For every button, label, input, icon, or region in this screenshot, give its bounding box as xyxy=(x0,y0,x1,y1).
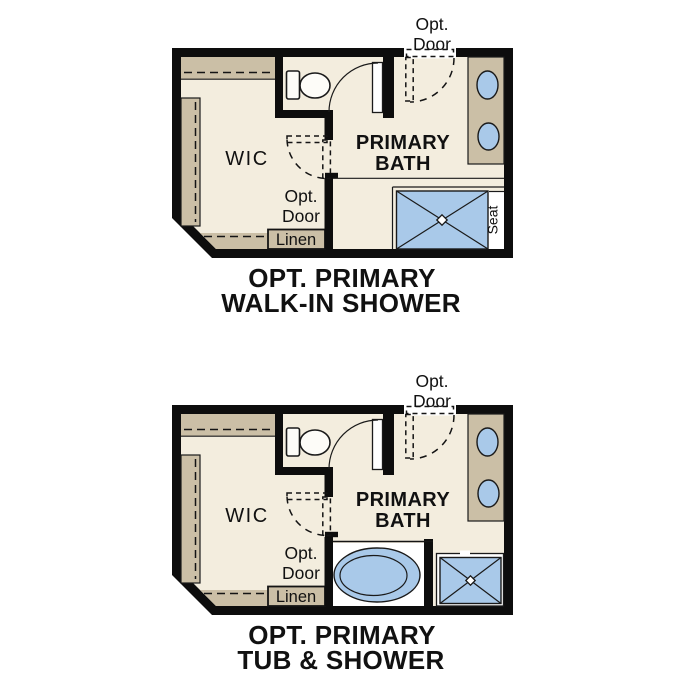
wic-label: WIC xyxy=(225,505,268,527)
double-sink-vanity xyxy=(468,414,504,521)
wic-label: WIC xyxy=(225,148,268,170)
opt-door-wic-label-line2: Door xyxy=(282,206,320,226)
opt-door-top-label-line1: Opt. xyxy=(415,14,448,34)
plan-title-line2: TUB & SHOWER xyxy=(237,645,444,675)
corner-shower xyxy=(437,551,504,607)
opt-door-top-label-line2: Door xyxy=(413,391,451,411)
sink-basin xyxy=(477,428,498,456)
plan-title-line2: WALK-IN SHOWER xyxy=(221,288,461,318)
plan-tub-and-shower: Opt. Door WIC PRIMARY BATH Opt. Door Lin… xyxy=(172,371,513,675)
toilet xyxy=(287,71,331,99)
bath-label-line1: PRIMARY xyxy=(356,132,451,154)
linen-label: Linen xyxy=(276,231,316,249)
sink-basin xyxy=(478,123,499,150)
seat-label: Seat xyxy=(485,205,501,234)
opt-door-top-label-line2: Door xyxy=(413,34,451,54)
bath-label-line2: BATH xyxy=(375,510,431,532)
sink-basin xyxy=(478,480,499,507)
opt-door-wic-label-line1: Opt. xyxy=(284,543,317,563)
soaking-tub xyxy=(333,542,433,607)
sink-basin xyxy=(477,71,498,99)
opt-door-wic-label-line2: Door xyxy=(282,563,320,583)
bath-label-line2: BATH xyxy=(375,153,431,175)
double-sink-vanity xyxy=(468,57,504,164)
floorplan-sheet: Opt. Door WIC PRIMARY BATH Opt. Door Lin… xyxy=(0,0,687,687)
linen-label: Linen xyxy=(276,588,316,606)
toilet xyxy=(287,428,331,456)
plan-walk-in-shower: Opt. Door WIC PRIMARY BATH Opt. Door Lin… xyxy=(172,14,513,318)
bath-label-line1: PRIMARY xyxy=(356,489,451,511)
opt-door-wic-label-line1: Opt. xyxy=(284,186,317,206)
opt-door-top-label-line1: Opt. xyxy=(415,371,448,391)
floorplan-canvas: Opt. Door WIC PRIMARY BATH Opt. Door Lin… xyxy=(0,0,687,687)
